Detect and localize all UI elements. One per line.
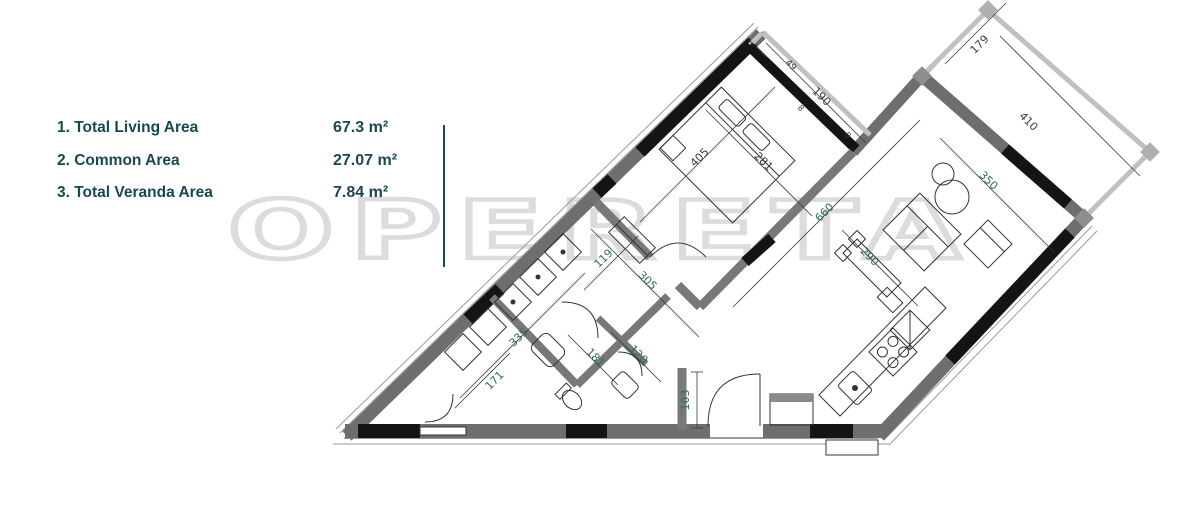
floor-plan: 4052811904988179410350660290119305335171… [0,0,1201,520]
entry-cabinet [770,394,813,425]
bedside-table [660,135,685,160]
veranda [912,0,1160,228]
dimension-label: 290 [857,245,881,269]
legend-value: 27.07 m² [333,152,409,170]
round-table [932,163,969,214]
apartment-outline [345,10,1150,438]
dimension-label: 281 [751,150,775,174]
entrance-door [708,374,760,426]
legend-label: 3. Total Veranda Area [57,184,333,202]
toilet [555,383,585,413]
wc-sink [610,370,640,400]
dimension-label: 305 [635,269,659,293]
dimension-label: 405 [688,146,712,170]
floorplan-page: { "legend": { "items": [ {"label": "1. T… [0,0,1201,520]
dimension-label: 179 [968,33,992,57]
legend-divider [443,125,445,267]
dimension-label: 8 [796,103,806,113]
legend: 1. Total Living Area 67.3 m² 2. Common A… [57,112,409,210]
dimension-label: 660 [813,201,837,225]
doors [425,243,760,426]
storage-door [425,394,453,422]
dining-bar [835,231,903,313]
armchair [964,220,1012,268]
furniture [445,87,1012,455]
bedroom-door [650,243,706,257]
entry-step [826,440,878,455]
legend-label: 1. Total Living Area [57,119,333,137]
legend-row-veranda: 3. Total Veranda Area 7.84 m² [57,177,409,210]
dimension-label: 181 [583,346,607,370]
bathroom-door [562,302,598,338]
legend-row-common: 2. Common Area 27.07 m² [57,145,409,178]
dimension-label: 103 [679,390,692,411]
storage-cabinets [445,234,582,371]
dimension-label: 410 [1016,110,1040,134]
sofa [883,193,961,271]
legend-label: 2. Common Area [57,152,333,170]
legend-value: 67.3 m² [333,119,409,137]
interior-walls [492,152,853,430]
legend-value: 7.84 m² [333,184,409,202]
legend-row-living: 1. Total Living Area 67.3 m² [57,112,409,145]
kitchen-counter [819,287,946,416]
radiator [420,427,466,435]
dimension-label: 350 [976,169,1000,193]
